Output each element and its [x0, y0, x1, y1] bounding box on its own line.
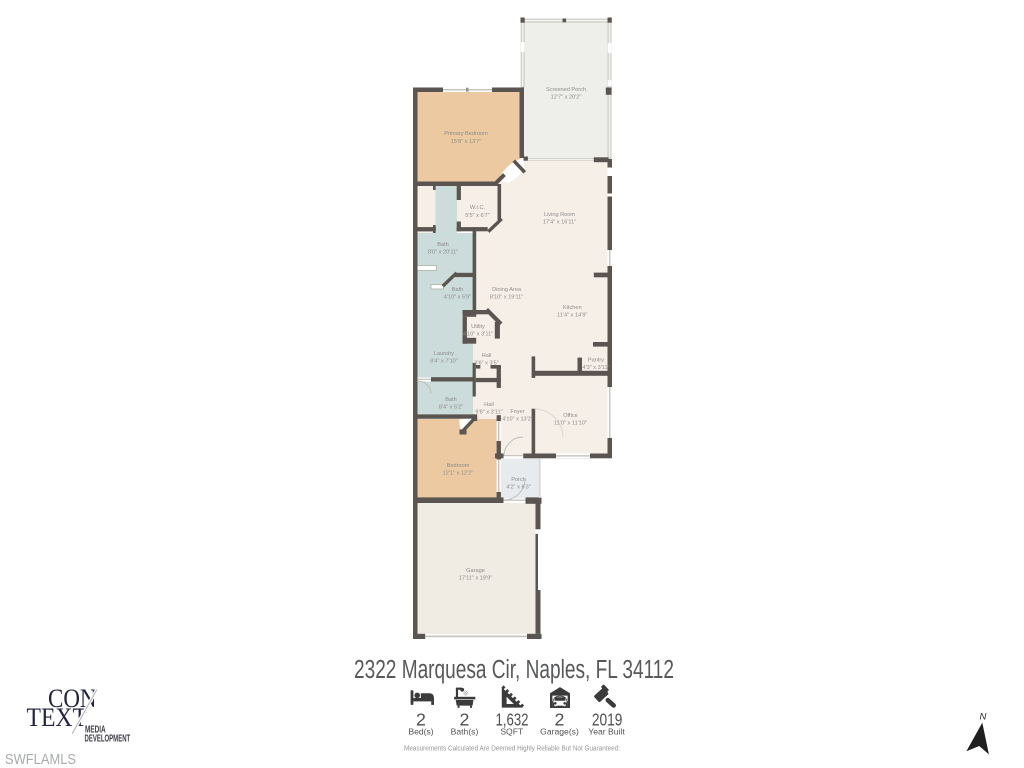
svg-text:4'10" x 5'9": 4'10" x 5'9" [444, 295, 472, 301]
svg-text:4'10" x 3'11": 4'10" x 3'11" [463, 332, 493, 338]
svg-text:SQFT: SQFT [500, 727, 524, 737]
svg-text:Measurements Calculated Are De: Measurements Calculated Are Deemed Highl… [404, 746, 620, 753]
svg-text:4'2" x 6'3": 4'2" x 6'3" [506, 485, 530, 491]
svg-text:8'4" x 7'10": 8'4" x 7'10" [430, 359, 458, 365]
svg-text:N: N [980, 712, 987, 723]
svg-text:Bed(s): Bed(s) [408, 727, 433, 737]
svg-text:Bath: Bath [445, 397, 457, 403]
svg-text:Hall: Hall [484, 402, 494, 408]
svg-text:2322 Marquesa Cir, Naples, FL: 2322 Marquesa Cir, Naples, FL 34112 [354, 656, 674, 684]
svg-text:TEXT: TEXT [27, 702, 88, 732]
svg-text:Utility: Utility [471, 324, 485, 330]
svg-text:11'0" x 11'10": 11'0" x 11'10" [554, 421, 587, 427]
svg-text:5'5" x 6'7": 5'5" x 6'7" [465, 213, 489, 219]
svg-text:Bedroom: Bedroom [447, 463, 470, 469]
svg-text:Hall: Hall [482, 353, 492, 359]
svg-text:4'10" x 13'2": 4'10" x 13'2" [502, 417, 533, 423]
svg-text:17'4" x 16'11": 17'4" x 16'11" [543, 220, 576, 226]
svg-text:W.I.C.: W.I.C. [470, 205, 486, 211]
svg-text:12'1" x 12'2": 12'1" x 12'2" [443, 471, 474, 477]
svg-text:SWFLAMLS: SWFLAMLS [5, 752, 76, 768]
svg-text:15'8" x 13'7": 15'8" x 13'7" [451, 139, 482, 145]
svg-text:11'4" x 14'9": 11'4" x 14'9" [557, 313, 587, 319]
svg-text:Kitchen: Kitchen [563, 305, 582, 311]
svg-text:Bath(s): Bath(s) [451, 727, 479, 737]
svg-text:Primary Bedroom: Primary Bedroom [444, 131, 488, 137]
svg-text:Pantry: Pantry [588, 358, 604, 364]
svg-text:Laundry: Laundry [434, 351, 454, 357]
svg-text:8'0" x 20'11": 8'0" x 20'11" [428, 250, 458, 256]
svg-text:Living Room: Living Room [544, 212, 575, 218]
svg-text:4'3" x 3'11": 4'3" x 3'11" [582, 365, 609, 371]
svg-text:12'7" x 20'2": 12'7" x 20'2" [551, 95, 582, 101]
svg-text:Bath: Bath [437, 242, 449, 248]
svg-text:Dining Area: Dining Area [492, 287, 522, 293]
svg-text:Year Built: Year Built [588, 727, 625, 737]
svg-text:Porch: Porch [511, 477, 526, 483]
svg-text:8'4" x 5'2": 8'4" x 5'2" [439, 405, 463, 411]
svg-text:8'10" x 19'11": 8'10" x 19'11" [490, 295, 523, 301]
svg-text:Foyer: Foyer [510, 409, 524, 415]
svg-text:Office: Office [563, 413, 578, 419]
svg-text:Screened Porch: Screened Porch [546, 87, 586, 93]
svg-text:Bath: Bath [452, 287, 464, 293]
svg-text:17'11" x 19'9": 17'11" x 19'9" [459, 576, 492, 582]
svg-text:3'6" x 3'5": 3'6" x 3'5" [474, 361, 498, 367]
svg-text:DEVELOPMENT: DEVELOPMENT [85, 734, 131, 745]
svg-text:Garage: Garage [466, 568, 485, 574]
svg-text:9'8" x 3'11": 9'8" x 3'11" [475, 410, 502, 416]
svg-text:Garage(s): Garage(s) [540, 727, 579, 737]
